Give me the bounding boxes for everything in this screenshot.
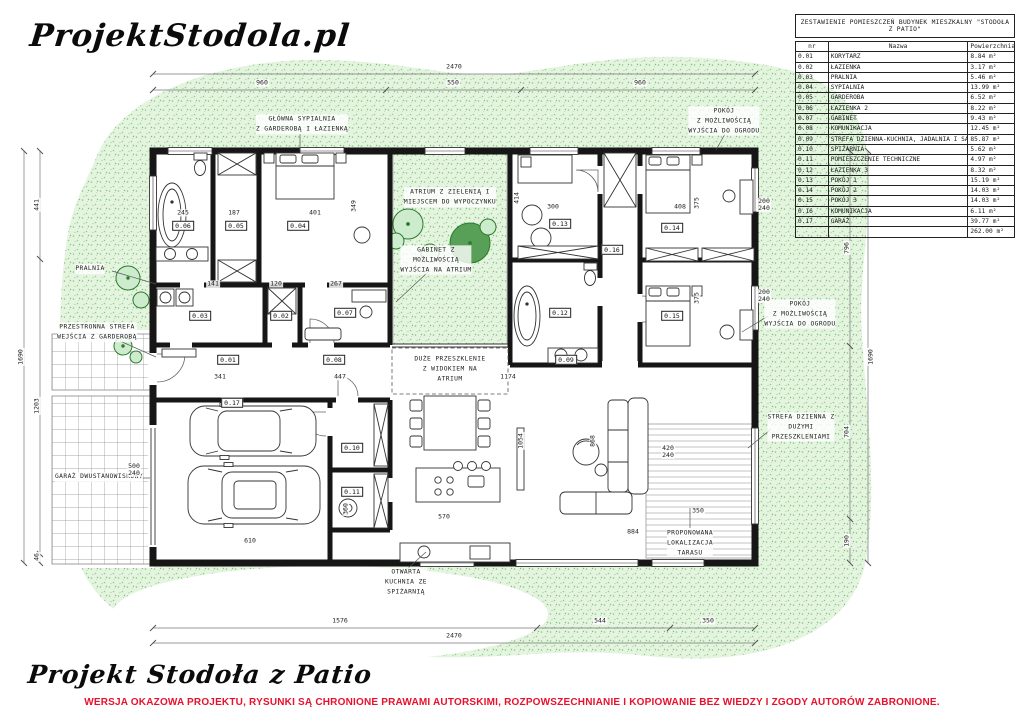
room-tag: 0.17 [221, 398, 243, 408]
room-tag: 0.08 [323, 355, 345, 365]
room-name-cell: ŁAZIENKA 3 [829, 166, 969, 176]
room-name-cell: ŁAZIENKA [829, 63, 969, 73]
dimension-label: 1203 [33, 397, 40, 415]
column-header-name: Nazwa [829, 42, 969, 52]
annotation-main-bedroom: GŁÓWNA SYPIALNIA Z GARDEROBĄ I ŁAZIENKĄ [256, 114, 348, 134]
dimension-label: 2470 [445, 63, 463, 70]
room-tag: 0.10 [341, 443, 363, 453]
copyright-disclaimer: WERSJA OKAZOWA PROJEKTU, RYSUNKI SĄ CHRO… [0, 697, 1024, 708]
dimension-label: 350 [701, 617, 715, 624]
room-area-cell: 9.43 m² [968, 114, 1015, 124]
room-number-cell: 0.01 [796, 52, 829, 62]
room-number-cell: 0.07 [796, 114, 829, 124]
dimension-label: 360 [342, 502, 349, 516]
room-name-cell: POKÓJ 3 [829, 196, 969, 206]
dimension-label: 884 [626, 528, 640, 535]
room-tag: 0.09 [555, 355, 577, 365]
room-area-cell: 39.77 m² [968, 217, 1015, 227]
dimension-label: 349 [350, 199, 357, 213]
dimension-label: 46 [33, 552, 40, 562]
room-number-cell: 0.03 [796, 73, 829, 83]
room-name-cell: KOMUNIKACJA [829, 207, 969, 217]
room-tag: 0.13 [549, 219, 571, 229]
room-number-cell: 0.13 [796, 176, 829, 186]
room-name-cell: KOMUNIKACJA [829, 124, 969, 134]
dimension-label: 1576 [331, 617, 349, 624]
room-area-cell: 13.99 m² [968, 83, 1015, 93]
table-row: 0.01 KORYTARZ 8.84 m² [796, 52, 1015, 62]
table-row: 0.03 PRALNIA 5.46 m² [796, 73, 1015, 83]
room-area-cell: 6.52 m² [968, 93, 1015, 103]
dimension-label: 868 [589, 434, 596, 448]
room-number-cell: 0.10 [796, 145, 829, 155]
room-tag: 0.11 [341, 487, 363, 497]
dimension-label: 704 [843, 425, 850, 439]
room-number-cell: 0.09 [796, 135, 829, 145]
table-row: 0.10 SPIŻARNIA 5.62 m² [796, 145, 1015, 155]
annotation-atrium: ATRIUM Z ZIELENIĄ I MIEJSCEM DO WYPOCZYN… [404, 187, 496, 207]
dimension-label: 1174 [499, 373, 517, 380]
room-number-cell: 0.15 [796, 196, 829, 206]
dimension-label: 441 [33, 198, 40, 212]
room-tag: 0.03 [189, 311, 211, 321]
room-number-cell: 0.16 [796, 207, 829, 217]
brand-logo: ProjektStodola.pl [28, 18, 352, 54]
annotation-room-garden-top: POKÓJ Z MOŻLIWOŚCIĄ WYJŚCIA DO OGRODU [688, 106, 759, 135]
schedule-rows: 0.01 KORYTARZ 8.84 m² 0.02 ŁAZIENKA 3.17… [796, 52, 1015, 227]
dimension-label: 570 [437, 513, 451, 520]
room-tag: 0.14 [661, 223, 683, 233]
table-row: 0.15 POKÓJ 3 14.03 m² [796, 196, 1015, 206]
dimension-label: 141 [206, 280, 220, 287]
room-tag: 0.15 [661, 311, 683, 321]
table-row: 0.06 ŁAZIENKA 2 8.22 m² [796, 104, 1015, 114]
annotation-pralnia: PRALNIA [75, 264, 104, 274]
dimension-label: 960 [633, 79, 647, 86]
room-tag: 0.06 [172, 221, 194, 231]
room-tag: 0.01 [217, 355, 239, 365]
dimension-label: 408 [673, 203, 687, 210]
room-number-cell: 0.08 [796, 124, 829, 134]
annotation-terrace: PROPONOWANA LOKALIZACJA TARASU [667, 528, 713, 557]
room-number-cell: 0.02 [796, 63, 829, 73]
dimension-label: 190 [843, 534, 850, 548]
dimension-label: 401 [308, 209, 322, 216]
room-area-cell: 15.19 m² [968, 176, 1015, 186]
column-header-nr: nr [796, 42, 829, 52]
dimension-label: 960 [255, 79, 269, 86]
room-name-cell: POKÓJ 2 [829, 186, 969, 196]
room-name-cell: STREFA DZIENNA-KUCHNIA, JADALNIA I SALON [829, 135, 969, 145]
room-area-cell: 85.87 m² [968, 135, 1015, 145]
dimension-label: 544 [593, 617, 607, 624]
room-name-cell: POMIESZCZENIE TECHNICZNE [829, 155, 969, 165]
room-number-cell: 0.04 [796, 83, 829, 93]
table-row: 0.13 POKÓJ 1 15.19 m² [796, 176, 1015, 186]
dimension-label: 447 [333, 373, 347, 380]
total-area: 262.00 m² [968, 227, 1015, 237]
room-schedule-table: ZESTAWIENIE POMIESZCZEŃ BUDYNEK MIESZKAL… [795, 14, 1015, 238]
room-tag: 0.07 [334, 308, 356, 318]
dimension-label: 200 240 [757, 289, 771, 303]
footer-title: Projekt Stodoła z Patio [26, 660, 373, 689]
dimension-label: 796 [843, 241, 850, 255]
room-area-cell: 3.17 m² [968, 63, 1015, 73]
annotation-entry: PRZESTRONNA STREFA WEJŚCIA Z GARDEROBĄ [57, 322, 137, 342]
annotation-living-glazing: STREFA DZIENNA Z DUŻYMI PRZESZKLENIAMI [767, 412, 834, 441]
room-area-cell: 8.84 m² [968, 52, 1015, 62]
room-number-cell: 0.11 [796, 155, 829, 165]
room-name-cell: POKÓJ 1 [829, 176, 969, 186]
room-name-cell: KORYTARZ [829, 52, 969, 62]
room-name-cell: SYPIALNIA [829, 83, 969, 93]
dimension-label: 420 240 [661, 445, 675, 459]
room-name-cell: GABINET [829, 114, 969, 124]
room-number-cell: 0.12 [796, 166, 829, 176]
room-tag: 0.02 [270, 311, 292, 321]
dimension-label: 245 [176, 209, 190, 216]
room-area-cell: 5.62 m² [968, 145, 1015, 155]
dimension-label: 341 [213, 373, 227, 380]
annotation-kitchen: OTWARTA KUCHNIA ZE SPIŻARNIĄ [385, 567, 427, 596]
dimension-label: 1054 [517, 432, 524, 450]
room-area-cell: 14.03 m² [968, 186, 1015, 196]
column-header-area: Powierzchnia [968, 42, 1015, 52]
table-row: 0.05 GARDEROBA 6.52 m² [796, 93, 1015, 103]
dimension-label: 550 [446, 79, 460, 86]
dimension-label: 1690 [867, 348, 874, 366]
annotation-room-garden-right: POKÓJ Z MOŻLIWOŚCIĄ WYJŚCIA DO OGRODU [764, 299, 835, 328]
table-row: 0.02 ŁAZIENKA 3.17 m² [796, 63, 1015, 73]
room-name-cell: ŁAZIENKA 2 [829, 104, 969, 114]
table-row: 0.17 GARAŻ 39.77 m² [796, 217, 1015, 227]
room-area-cell: 5.46 m² [968, 73, 1015, 83]
room-area-cell: 12.45 m² [968, 124, 1015, 134]
schedule-total-row: 262.00 m² [796, 227, 1015, 237]
room-number-cell: 0.06 [796, 104, 829, 114]
room-name-cell: GARDEROBA [829, 93, 969, 103]
table-row: 0.04 SYPIALNIA 13.99 m² [796, 83, 1015, 93]
room-area-cell: 8.22 m² [968, 104, 1015, 114]
room-number-cell: 0.05 [796, 93, 829, 103]
room-name-cell: GARAŻ [829, 217, 969, 227]
room-name-cell: PRALNIA [829, 73, 969, 83]
dimension-label: 610 [243, 537, 257, 544]
dimension-label: 120 [269, 280, 283, 287]
dimension-label: 500 240 [127, 463, 141, 477]
room-area-cell: 4.97 m² [968, 155, 1015, 165]
kitchen-island [416, 462, 500, 503]
dimension-label: 375 [693, 291, 700, 305]
dimension-label: 350 [691, 507, 705, 514]
room-tag: 0.04 [287, 221, 309, 231]
table-row: 0.12 ŁAZIENKA 3 8.32 m² [796, 166, 1015, 176]
dimension-label: 187 [227, 209, 241, 216]
dimension-label: 1690 [17, 348, 24, 366]
room-tag: 0.05 [225, 221, 247, 231]
schedule-title: ZESTAWIENIE POMIESZCZEŃ BUDYNEK MIESZKAL… [795, 14, 1015, 38]
room-area-cell: 14.03 m² [968, 196, 1015, 206]
room-area-cell: 8.32 m² [968, 166, 1015, 176]
table-row: 0.16 KOMUNIKACJA 6.11 m² [796, 207, 1015, 217]
dimension-label: 414 [513, 191, 520, 205]
room-tag: 0.12 [549, 308, 571, 318]
room-number-cell: 0.14 [796, 186, 829, 196]
dining-table [410, 396, 490, 450]
table-row: 0.14 POKÓJ 2 14.03 m² [796, 186, 1015, 196]
table-row: 0.08 KOMUNIKACJA 12.45 m² [796, 124, 1015, 134]
annotation-gabinet: GABINET Z MOŻLIWOŚCIĄ WYJŚCIA NA ATRIUM [400, 245, 471, 274]
floor-plan-sheet: ProjektStodola.pl ZESTAWIENIE POMIESZCZE… [0, 0, 1024, 724]
table-row: 0.09 STREFA DZIENNA-KUCHNIA, JADALNIA I … [796, 135, 1015, 145]
room-tag: 0.16 [601, 245, 623, 255]
table-row: 0.11 POMIESZCZENIE TECHNICZNE 4.97 m² [796, 155, 1015, 165]
room-number-cell: 0.17 [796, 217, 829, 227]
room-name-cell: SPIŻARNIA [829, 145, 969, 155]
schedule-header-row: nr Nazwa Powierzchnia [796, 42, 1015, 52]
driveway-grid [52, 334, 152, 564]
room-area-cell: 6.11 m² [968, 207, 1015, 217]
dimension-label: 200 240 [757, 198, 771, 212]
dimension-label: 375 [693, 196, 700, 210]
dimension-label: 267 [329, 280, 343, 287]
dimension-label: 300 [546, 203, 560, 210]
dimension-label: 2470 [445, 632, 463, 639]
table-row: 0.07 GABINET 9.43 m² [796, 114, 1015, 124]
annotation-big-glazing: DUŻE PRZESZKLENIE Z WIDOKIEM NA ATRIUM [414, 354, 485, 383]
